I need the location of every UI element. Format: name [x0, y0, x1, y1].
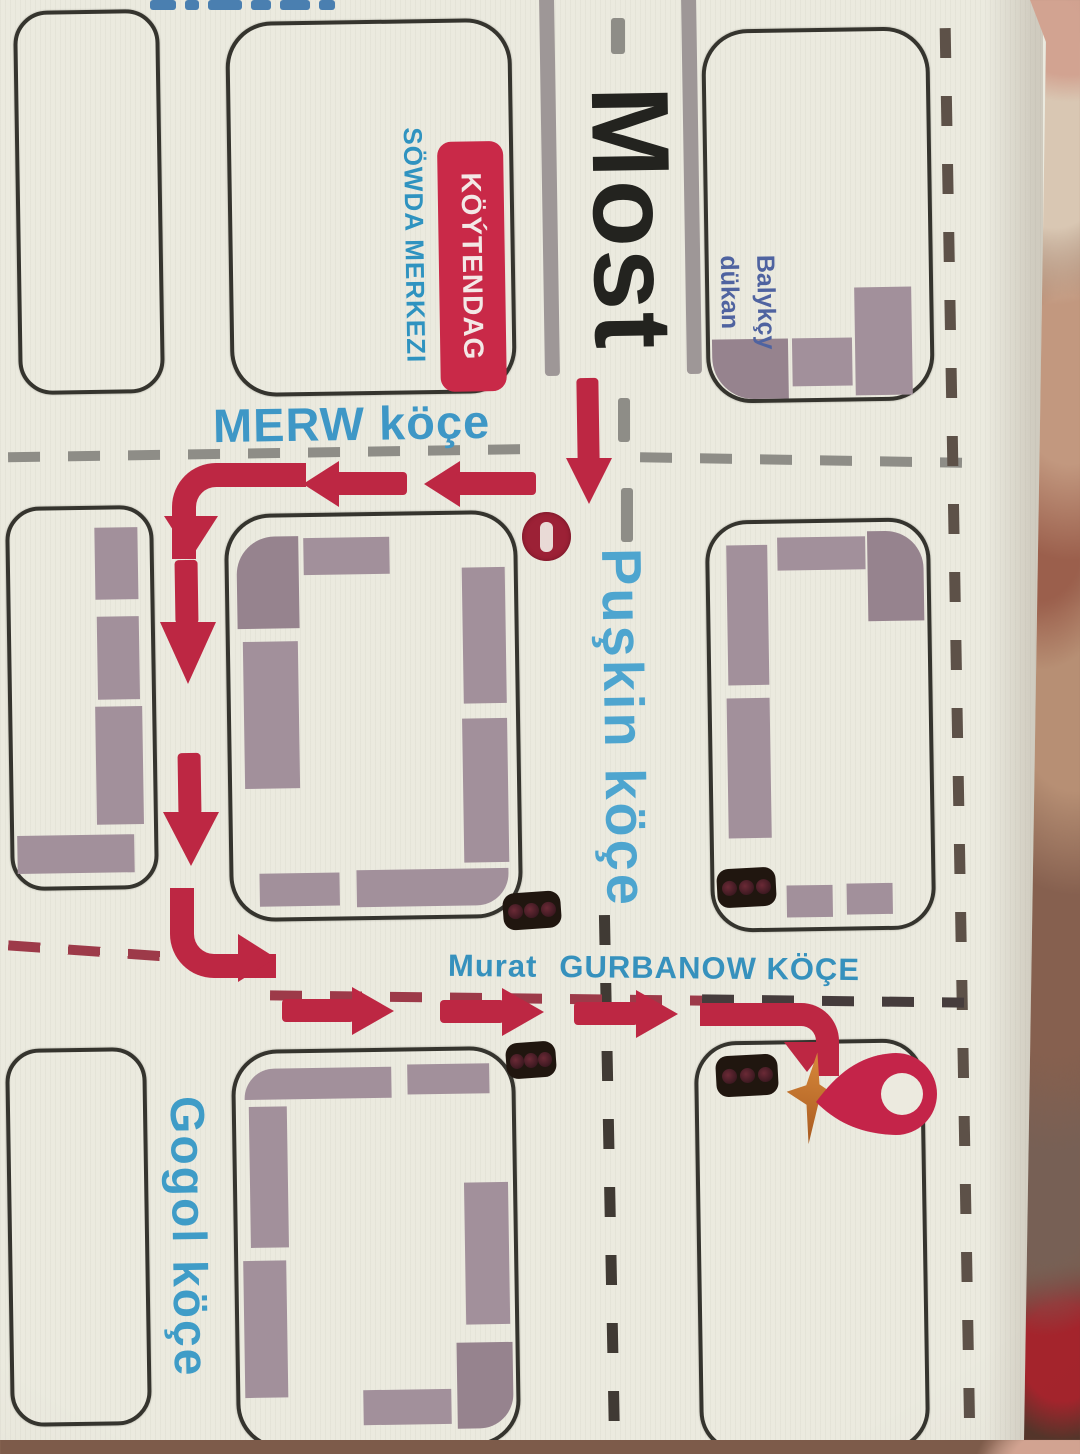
building-footprint	[792, 337, 853, 386]
building-footprint	[97, 616, 140, 700]
no-entry-icon	[522, 512, 571, 561]
route-arrowhead-east	[502, 988, 544, 1036]
route-arrowhead-east	[352, 987, 394, 1035]
building-footprint	[777, 536, 866, 570]
city-block-top-right: Balykçy dükan	[701, 26, 935, 404]
puskin-centerline-dash-1	[618, 398, 630, 442]
mall-sub-label: SÖWDA MERKEZI	[397, 127, 432, 393]
city-block-top-left	[13, 9, 165, 395]
building-footprint	[249, 1106, 289, 1248]
shop-label-line1: Balykçy	[747, 255, 785, 386]
building-footprint	[244, 1067, 391, 1100]
building-footprint	[243, 1260, 288, 1398]
traffic-light-icon	[716, 866, 777, 908]
city-block-bottom-left	[5, 1047, 152, 1427]
route-segment-east-1	[282, 999, 354, 1022]
route-segment-west-2	[335, 472, 407, 495]
building-footprint	[456, 1342, 513, 1429]
bridge-edge-left	[539, 0, 560, 376]
paper-edge-shading	[985, 0, 1043, 1440]
bridge-label: Most	[566, 85, 698, 377]
building-footprint	[854, 287, 913, 396]
map-pin-icon	[812, 1042, 940, 1150]
building-footprint	[787, 885, 833, 918]
mall-sign: KÖÝTENDAG	[437, 141, 507, 392]
route-arrowhead-west	[303, 461, 339, 507]
building-footprint	[727, 698, 772, 839]
gurbanow-centerline-west	[8, 940, 168, 961]
street-label-gurbanow-part2: GURBANOW KÖÇE	[559, 949, 860, 987]
route-arrowhead-down	[164, 516, 218, 558]
building-footprint	[303, 537, 390, 575]
map-paper: Most SÖWDA MERKEZI KÖÝTENDAG Balykçy dük…	[0, 0, 1060, 1440]
building-footprint	[867, 530, 924, 621]
building-footprint	[95, 706, 144, 825]
building-footprint	[462, 718, 509, 863]
shop-label-line2: dükan	[711, 255, 749, 386]
route-segment-east-3	[574, 1002, 638, 1025]
building-footprint	[356, 868, 509, 907]
shop-label: Balykçy dükan	[711, 255, 786, 386]
route-segment-west-1	[456, 472, 536, 495]
building-footprint	[726, 545, 769, 686]
city-block-bottom-center	[231, 1046, 521, 1450]
building-footprint	[462, 567, 507, 704]
merw-street-centerline-east	[640, 452, 962, 468]
street-label-gogol: Gogol köçe	[159, 1096, 219, 1397]
building-footprint	[17, 834, 135, 874]
clipped-street-label-fragment	[150, 0, 370, 13]
building-footprint	[846, 883, 892, 915]
street-label-gurbanow-part1: Murat	[448, 948, 538, 984]
route-arrowhead-down	[160, 622, 216, 684]
building-footprint	[407, 1063, 489, 1094]
east-street-dashed-line	[940, 28, 976, 1440]
puskin-centerline-dash-2	[621, 488, 633, 542]
mall-sign-label: KÖÝTENDAG	[454, 172, 489, 360]
traffic-light-icon	[505, 1040, 557, 1079]
traffic-light-icon	[715, 1053, 779, 1097]
city-block-mid-left	[5, 505, 159, 891]
street-label-merw: MERW köçe	[213, 394, 491, 453]
city-block-top-center: SÖWDA MERKEZI KÖÝTENDAG	[225, 18, 517, 397]
traffic-light-icon	[502, 890, 562, 931]
building-footprint	[243, 641, 300, 789]
photo-of-route-map: { "title": "Hand-drawn city route map (p…	[0, 0, 1080, 1440]
route-arrowhead-east	[636, 990, 678, 1038]
building-footprint	[464, 1182, 510, 1325]
route-segment-from-bridge	[576, 378, 599, 462]
street-label-puskin: Puşkin köçe	[589, 548, 660, 929]
route-arrowhead-down	[163, 812, 219, 866]
route-arrowhead-west	[424, 461, 460, 507]
city-block-mid-center	[224, 510, 523, 923]
route-segment-south-2	[178, 753, 202, 815]
street-label-gurbanow: MuratGURBANOW KÖÇE	[448, 948, 860, 988]
puskin-centerline-dash-bridge	[611, 18, 625, 54]
route-arrowhead-down	[566, 458, 612, 504]
building-footprint	[94, 527, 138, 600]
no-entry-bar	[540, 522, 553, 552]
building-footprint	[363, 1389, 452, 1425]
route-arrowhead-east	[238, 934, 276, 982]
route-segment-south-1	[174, 560, 198, 624]
route-segment-east-2	[440, 1000, 504, 1023]
